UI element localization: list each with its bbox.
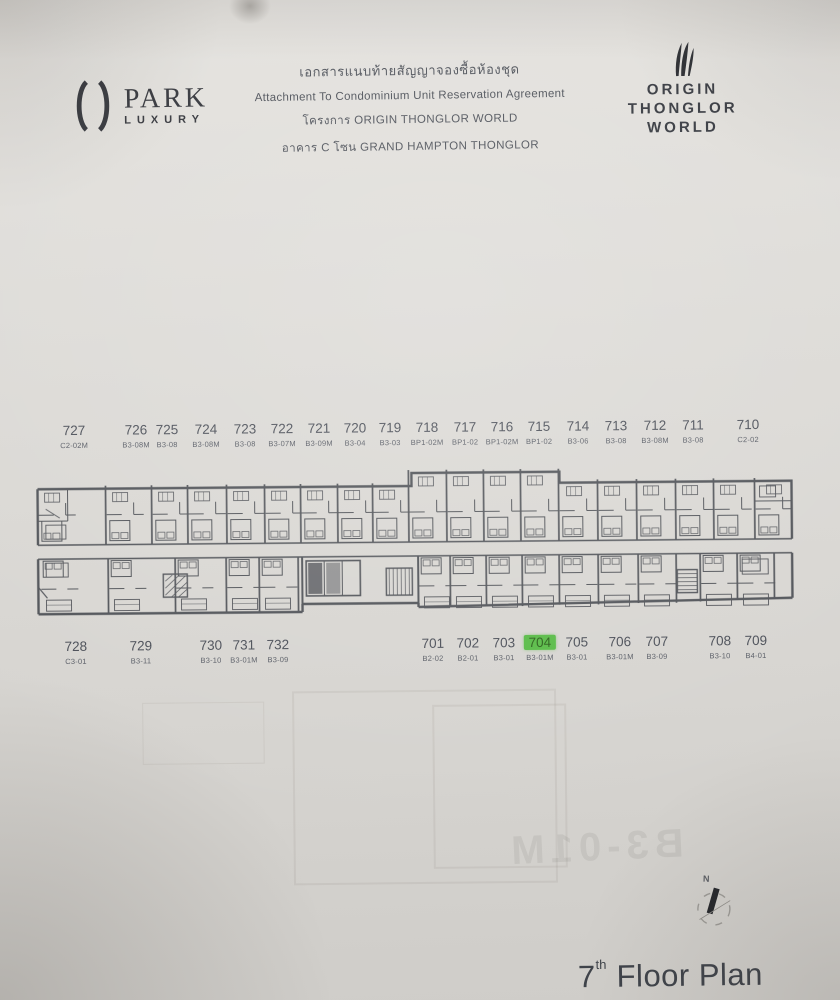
unit-type-code: C2-02M [40,441,108,451]
unit-label-710: 710C2-02 [714,416,782,445]
unit-label-729: 729B3-11 [107,637,175,666]
floor-plan-label: Floor Plan [616,957,763,994]
unit-number: 707 [646,634,669,649]
unit-number: 728 [65,639,88,654]
origin-brand-line1: ORIGIN [615,79,750,99]
compass-north-label: N [703,874,710,884]
park-luxury-brackets-icon [72,78,114,134]
unit-label-707: 707B3-09 [623,633,691,662]
compass-needle-icon [685,875,743,937]
attachment-title-english: Attachment To Condominium Unit Reservati… [235,88,585,105]
attachment-title-thai: เอกสารแนบท้ายสัญญาจองซื้อห้องชุด [234,58,584,84]
unit-label-732: 732B3-09 [244,636,312,665]
unit-type-code: C3-01 [42,657,110,667]
north-compass-icon: N [685,875,743,937]
park-brand-sub: LUXURY [124,113,208,126]
floor-ordinal-suffix: th [595,957,606,972]
origin-brand-line3: WORLD [615,117,750,137]
unit-type-code: B4-01 [722,651,790,661]
unit-number: 732 [267,637,290,652]
unit-number: 727 [63,423,86,438]
unit-number: 729 [130,638,153,653]
document-header: เอกสารแนบท้ายสัญญาจองซื้อห้องชุด Attachm… [234,58,585,168]
unit-number: 709 [745,633,768,648]
floor-plan-title: 7thFloor Plan [578,955,763,996]
park-brand-name: PARK [124,85,208,112]
unit-label-728: 728C3-01 [42,638,110,667]
unit-label-709: 709B4-01 [722,632,790,661]
unit-number: 710 [737,417,760,432]
unit-type-code: B3-09 [623,652,691,662]
unit-number: 711 [682,417,704,432]
origin-brand-line2: THONGLOR [615,98,750,118]
origin-building-icon [665,38,699,80]
unit-type-code: B3-09 [244,655,312,665]
unit-type-code: C2-02 [714,435,782,445]
unit-type-code: B3-11 [107,656,175,666]
park-luxury-logo: PARK LUXURY [72,78,208,134]
unit-number: 705 [566,634,589,649]
building-zone-line: อาคาร C โซน GRAND HAMPTON THONGLOR [235,136,585,159]
unit-label-727: 727C2-02M [40,422,108,451]
project-name-line: โครงการ ORIGIN THONGLOR WORLD [235,109,585,132]
origin-thonglor-world-logo: ORIGIN THONGLOR WORLD [614,37,750,137]
floor-number: 7 [578,959,596,994]
